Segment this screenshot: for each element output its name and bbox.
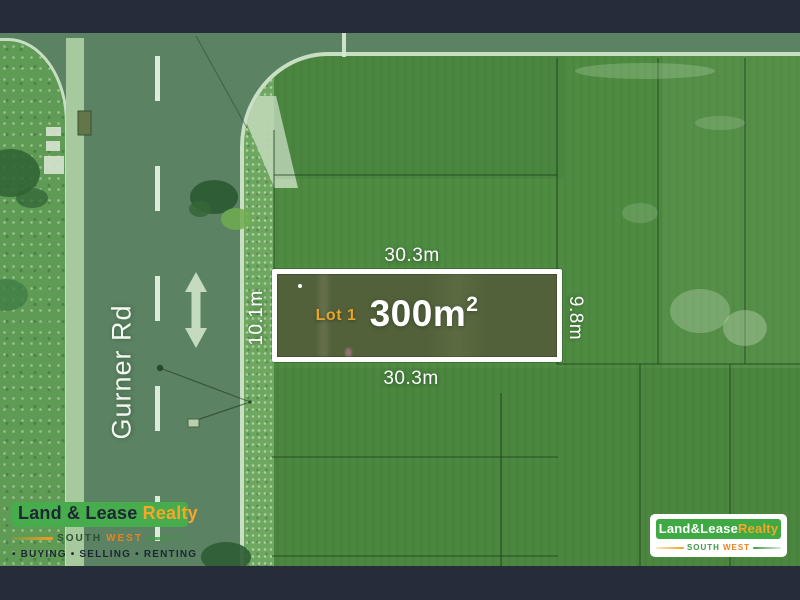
brand-name-primary: Land&Lease <box>659 521 738 536</box>
green-rule-line <box>147 537 188 540</box>
agency-logo-left: Land & Lease Realty SOUTH WEST • BUYING … <box>12 502 188 560</box>
agency-tagline: • BUYING • SELLING • RENTING <box>12 549 188 560</box>
agency-logo-right: Land&LeaseRealty SOUTH WEST <box>650 514 787 557</box>
agency-banner-small: Land&LeaseRealty <box>656 519 781 539</box>
dimension-left: 10.1m <box>246 290 268 345</box>
lot-area-label: 300m2 <box>370 293 479 335</box>
double-arrow-icon <box>183 270 209 350</box>
dimension-top: 30.3m <box>384 245 439 267</box>
dirt-patches <box>575 63 767 346</box>
street-sign <box>78 111 91 135</box>
green-rule-line <box>753 547 781 549</box>
survey-marker-dot <box>298 284 302 288</box>
region-west-label: WEST <box>723 543 750 552</box>
power-pole-wires <box>157 36 252 427</box>
shed-roofs <box>44 127 64 174</box>
region-row: SOUTH WEST <box>656 543 781 552</box>
dimension-right: 9.8m <box>564 296 586 340</box>
orange-rule-line <box>12 537 53 540</box>
brand-name-accent: Realty <box>738 521 778 536</box>
lot-area-exponent: 2 <box>466 293 478 316</box>
ground-flower-patch <box>345 348 352 357</box>
brand-name-primary: Land & Lease <box>18 503 143 523</box>
road-name-label: Gurner Rd <box>107 304 138 439</box>
dimension-bottom: 30.3m <box>383 368 438 390</box>
bottom-letterbox-bar <box>0 566 800 600</box>
region-west-label: WEST <box>106 533 143 544</box>
region-row: SOUTH WEST <box>12 533 188 544</box>
lot-area-value: 300m <box>370 293 467 334</box>
listing-image-frame: 30.3m 30.3m 10.1m 9.8m Lot 1 300m2 Gurne… <box>0 0 800 600</box>
agency-banner: Land & Lease Realty <box>12 502 188 527</box>
brand-name-accent: Realty <box>143 503 198 523</box>
lot-name-label: Lot 1 <box>316 307 357 325</box>
region-south-label: SOUTH <box>57 533 102 544</box>
top-letterbox-bar <box>0 0 800 33</box>
region-south-label: SOUTH <box>687 543 720 552</box>
orange-rule-line <box>656 547 684 549</box>
